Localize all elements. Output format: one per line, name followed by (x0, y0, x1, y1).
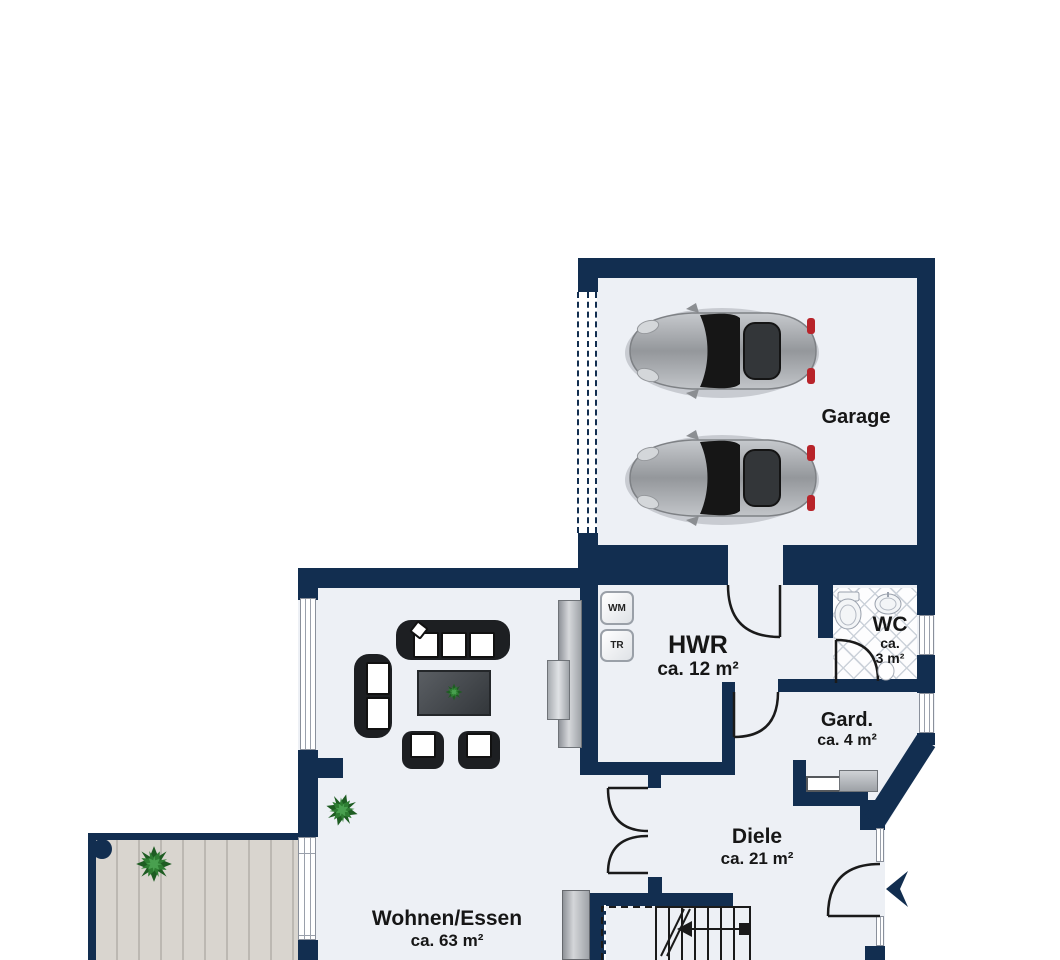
wall-stairs-west (590, 905, 606, 960)
terrace-deck (96, 840, 298, 960)
wall-west-jog (298, 750, 318, 837)
gard-label-text: Gard. (817, 710, 877, 731)
wall-doubledoor-stub-top (648, 773, 661, 788)
wall-stairs-north (590, 893, 733, 906)
wall-west-bottom (298, 940, 318, 960)
wall-living-nw-corner (298, 568, 318, 600)
armchair-left (402, 731, 444, 769)
room-label-diele: Diele ca. 21 m² (721, 826, 794, 868)
sofa-three-seat (396, 620, 510, 660)
entry-sidelight-top (876, 828, 884, 862)
wohnen-label-text: Wohnen/Essen (372, 908, 522, 930)
terrace-door-window (298, 837, 316, 940)
hwr-label-text: HWR (657, 632, 738, 658)
wall-living-north (298, 568, 598, 588)
dryer: TR (600, 629, 634, 662)
wall-corridor-south (778, 679, 918, 692)
wall-wc-west (818, 585, 833, 638)
entry-sidelight-bottom (876, 916, 884, 946)
sofa-two-seat (354, 654, 392, 738)
wall-garage-south-east (783, 545, 917, 585)
terrace-border-top (88, 833, 298, 840)
wc-area-ca-text: ca. (873, 636, 908, 651)
wall-east-upper (917, 585, 935, 615)
wall-garage-north (578, 258, 935, 278)
room-label-gard: Gard. ca. 4 m² (817, 710, 877, 750)
wall-east-mid (917, 655, 935, 693)
wall-entry-bottom (865, 946, 885, 960)
diele-label-text: Diele (721, 826, 794, 848)
room-label-wohnen: Wohnen/Essen ca. 63 m² (372, 908, 522, 950)
gard-bench-seat (806, 776, 841, 792)
window-gard-east (919, 693, 934, 733)
wall-gard-south (793, 790, 868, 806)
washing-machine-label: WM (608, 603, 626, 614)
tv-unit (547, 660, 570, 720)
entry-arrow-icon (886, 871, 908, 907)
diele-area-text: ca. 21 m² (721, 850, 794, 868)
gard-bench-cabinet (839, 770, 878, 792)
wall-doubledoor-stub-bottom (648, 877, 662, 893)
wohnen-area-text: ca. 63 m² (372, 932, 522, 950)
hall-cabinet (562, 890, 590, 960)
garage-doorway-floor (728, 548, 783, 588)
armchair-right (458, 731, 500, 769)
window-living-west (300, 598, 316, 750)
wall-garage-west-stub-top (578, 258, 598, 292)
gard-area-text: ca. 4 m² (817, 733, 877, 750)
window-wc-east (919, 615, 934, 655)
wc-area-value-text: 3 m² (873, 651, 908, 666)
wall-east-stub (917, 733, 935, 745)
wall-hwr-east-stub (722, 682, 735, 775)
room-label-wc: WC ca. 3 m² (873, 614, 908, 665)
wc-label-text: WC (873, 614, 908, 636)
coffee-table (417, 670, 491, 716)
room-label-garage: Garage (822, 407, 891, 428)
wall-entry-corner (860, 800, 885, 830)
floor-plan: WM TR (0, 0, 1060, 960)
room-label-hwr: HWR ca. 12 m² (657, 632, 738, 680)
washing-machine: WM (600, 591, 634, 625)
hwr-area-text: ca. 12 m² (657, 660, 738, 680)
wall-garage-south-west (578, 545, 728, 585)
dryer-label: TR (610, 640, 623, 651)
wall-garage-east (917, 258, 935, 585)
terrace-border-left (88, 840, 96, 960)
wall-west-jog-ext (318, 758, 343, 778)
wall-living-hwr-divider (580, 585, 598, 775)
garage-door (577, 292, 597, 533)
garage-label-text: Garage (822, 406, 891, 428)
